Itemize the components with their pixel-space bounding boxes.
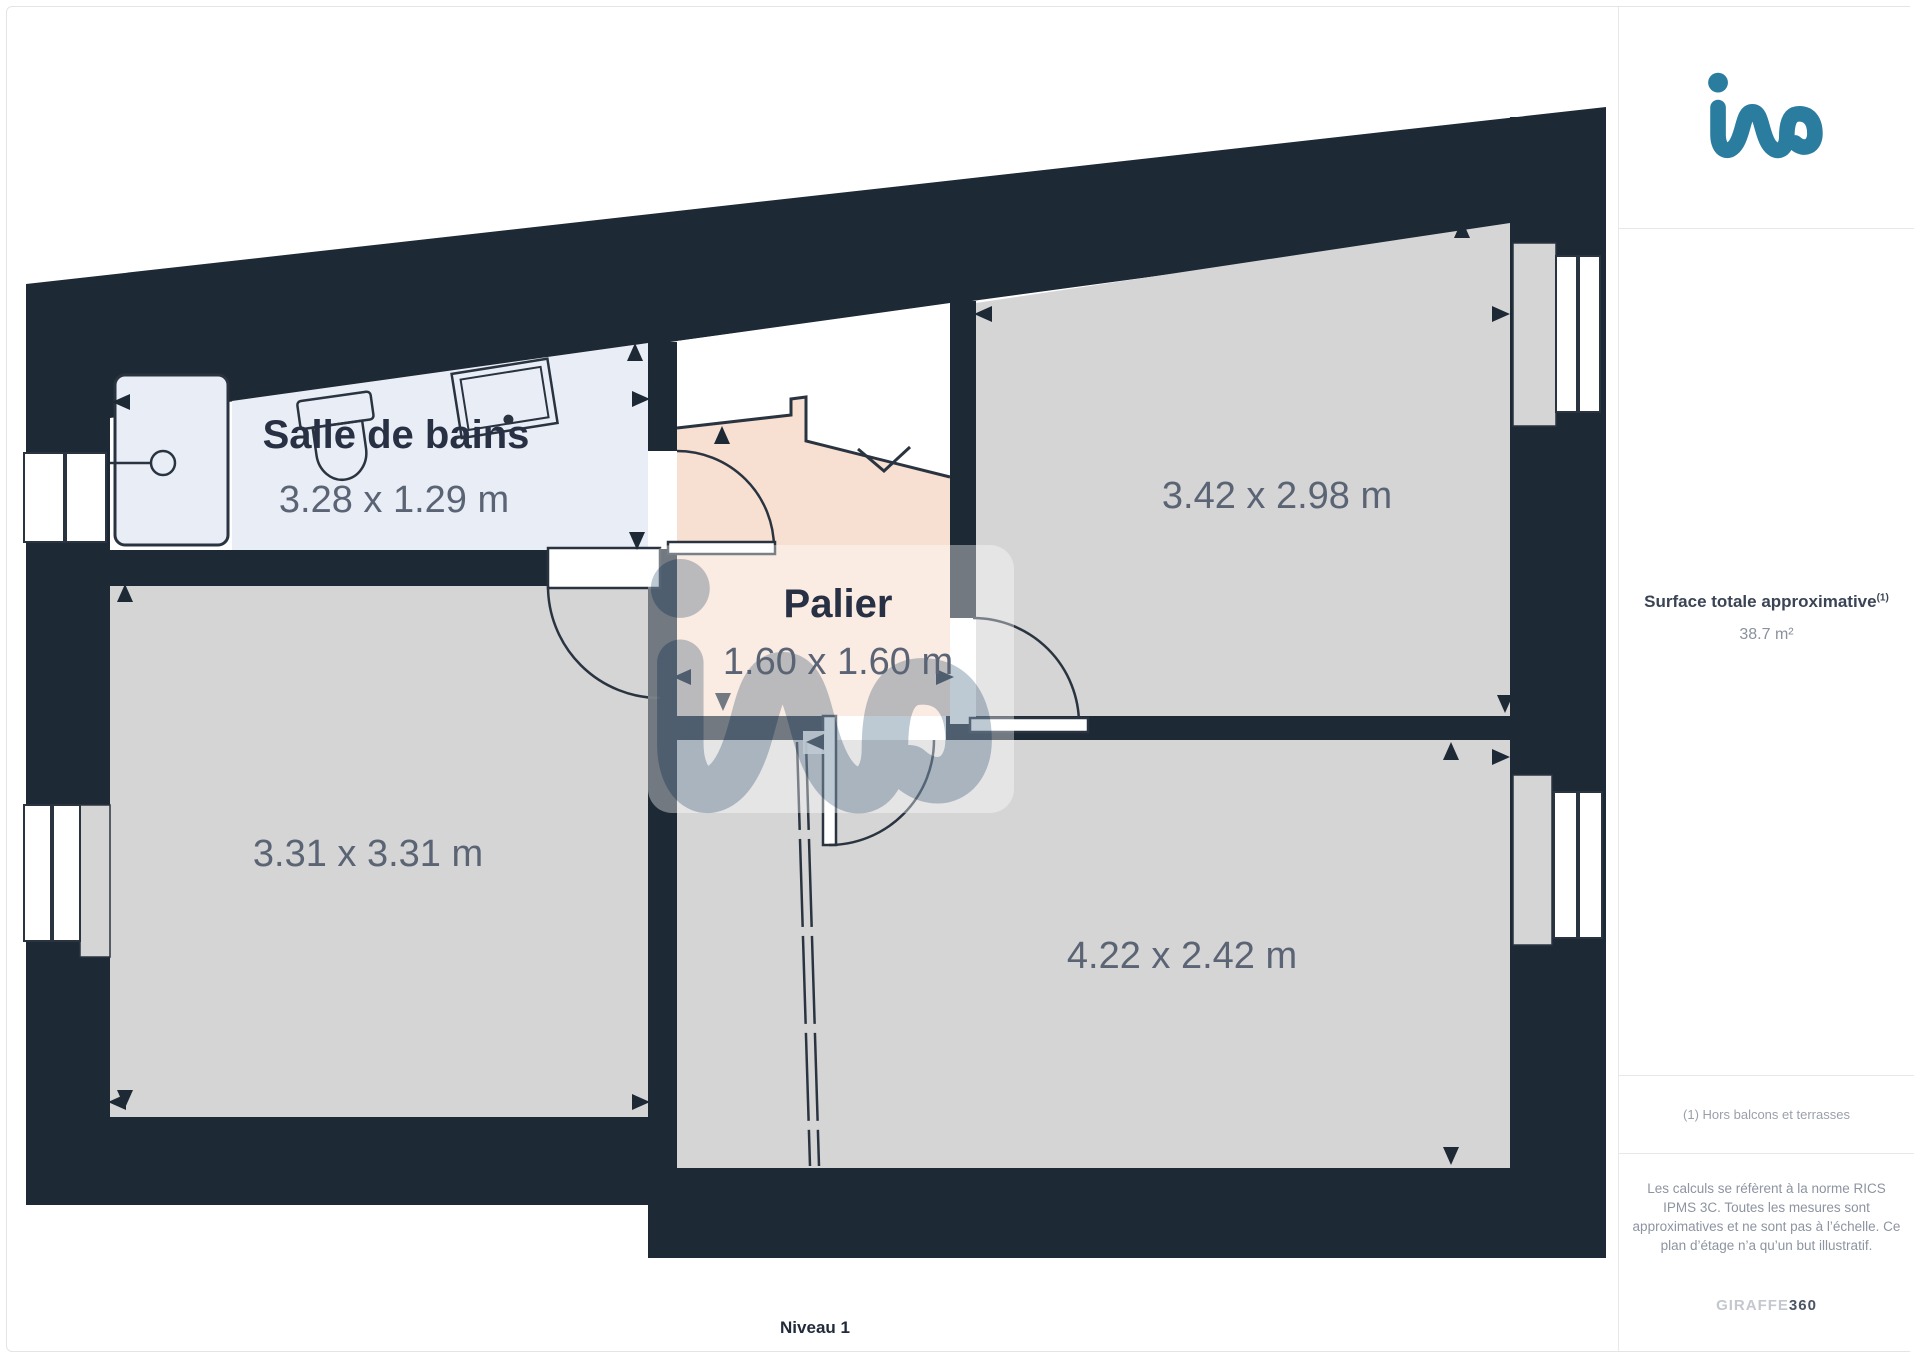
- disclaimer-text: Les calculs se réfèrent à la norme RICS …: [1631, 1179, 1903, 1255]
- room-bathroom-dimensions: 3.28 x 1.29 m: [279, 479, 509, 521]
- wall-bottom-right: [648, 1168, 1606, 1258]
- sidebar: Surface totale approximative(1) 38.7 m² …: [1618, 7, 1914, 1351]
- in-logo-icon: [1704, 68, 1830, 168]
- brand-name: GIRAFFE: [1716, 1297, 1789, 1314]
- surface-title: Surface totale approximative(1): [1619, 592, 1914, 612]
- surface-superscript: (1): [1877, 592, 1889, 603]
- wall-bottom-left: [26, 1117, 677, 1205]
- footnote-box: (1) Hors balcons et terrasses: [1619, 1075, 1914, 1154]
- wall-left: [26, 284, 110, 1205]
- landing-label: Palier: [784, 582, 893, 626]
- level-label: Niveau 1: [640, 1318, 990, 1338]
- logo-box: [1619, 7, 1914, 229]
- landing-dimensions: 1.60 x 1.60 m: [723, 641, 953, 683]
- surface-label: Surface totale approximative: [1644, 592, 1876, 611]
- giraffe360-wordmark: GIRAFFE360: [1619, 1297, 1914, 1314]
- legal-block: Les calculs se réfèrent à la norme RICS …: [1619, 1179, 1914, 1314]
- room-4-22-dimensions: 4.22 x 2.42 m: [1067, 935, 1297, 977]
- window-left-bottom: [24, 805, 110, 957]
- window-right-bottom: [1513, 775, 1602, 945]
- room-3-42-dimensions: 3.42 x 2.98 m: [1162, 475, 1392, 517]
- surface-block: Surface totale approximative(1) 38.7 m²: [1619, 592, 1914, 644]
- footnote-text: (1) Hors balcons et terrasses: [1683, 1107, 1850, 1122]
- surface-value: 38.7 m²: [1619, 626, 1914, 644]
- brand-suffix: 360: [1789, 1297, 1817, 1314]
- room-3-42-area: [976, 223, 1510, 716]
- window-right-top: [1513, 243, 1600, 426]
- window-left-top: [24, 453, 106, 542]
- floorplan-page: { "floorplan": { "level_label": "Niveau …: [0, 0, 1920, 1358]
- room-bathroom-label: Salle de bains: [263, 413, 530, 457]
- room-3-31-dimensions: 3.31 x 3.31 m: [253, 833, 483, 875]
